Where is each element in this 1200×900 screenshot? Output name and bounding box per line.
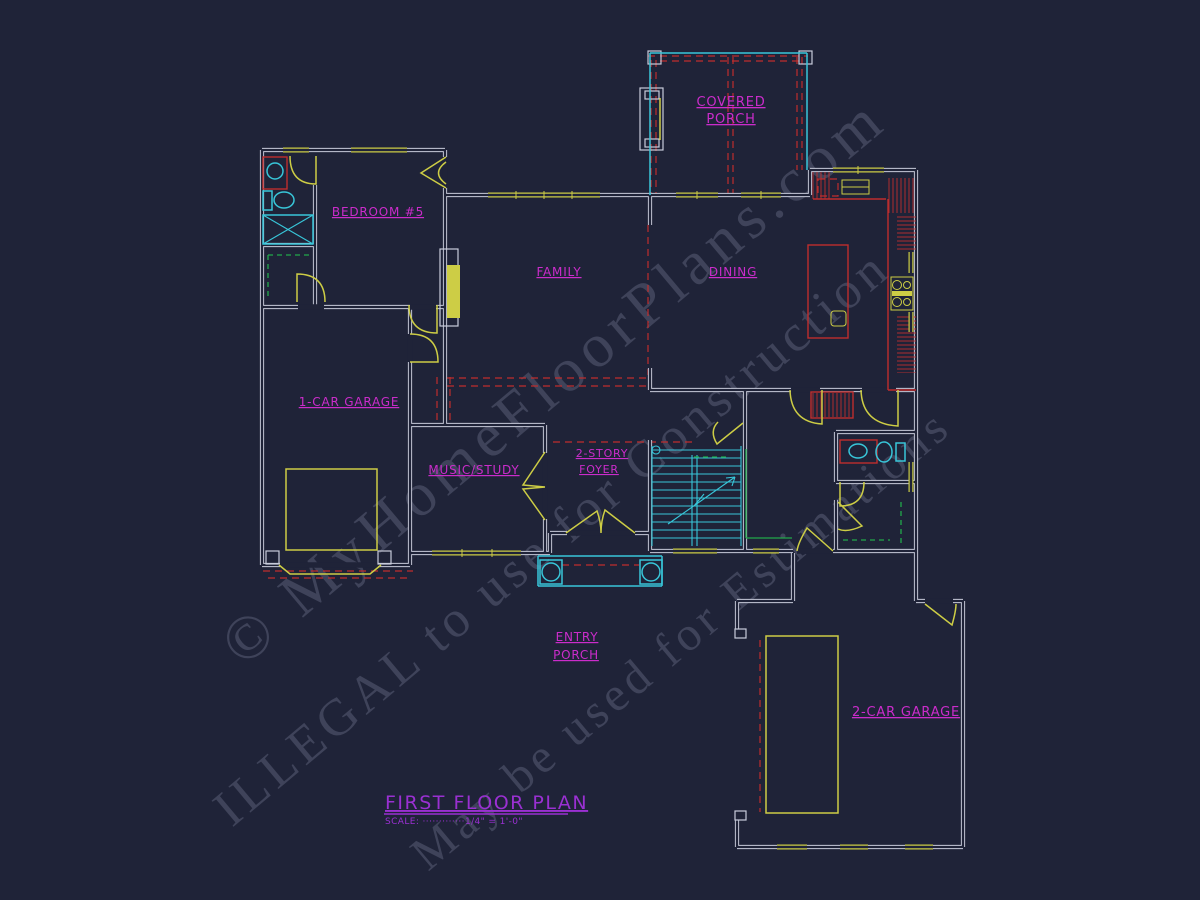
room-label-covered-porch: COVERED [696, 95, 765, 110]
floor-plan-canvas: © MyHomeFloorPlans.com ILLEGAL to use fo… [0, 0, 1200, 900]
room-label-music-study: MUSIC/STUDY [428, 463, 519, 477]
room-label-bedroom5: BEDROOM #5 [332, 205, 424, 219]
room-label-1car-garage: 1-CAR GARAGE [299, 395, 400, 409]
room-label-foyer: FOYER [579, 463, 619, 476]
room-label-covered-porch: PORCH [706, 112, 755, 127]
room-label-family: FAMILY [536, 265, 581, 279]
counter-hatch [812, 172, 832, 199]
room-label-entry-porch: PORCH [553, 648, 599, 662]
fireplace [447, 265, 460, 318]
plan-scale: SCALE: ·············1/4" = 1'-0" [385, 817, 523, 827]
room-label-entry-porch: ENTRY [556, 630, 599, 644]
counter-hatch [888, 178, 915, 213]
room-label-2car-garage: 2-CAR GARAGE [852, 705, 960, 720]
counter-hatch [897, 215, 916, 252]
room-label-foyer: 2-STORY [576, 447, 629, 460]
plan-title: FIRST FLOOR PLAN [385, 792, 588, 814]
mudroom-bench [811, 392, 853, 418]
room-label-dining: DINING [709, 265, 757, 279]
